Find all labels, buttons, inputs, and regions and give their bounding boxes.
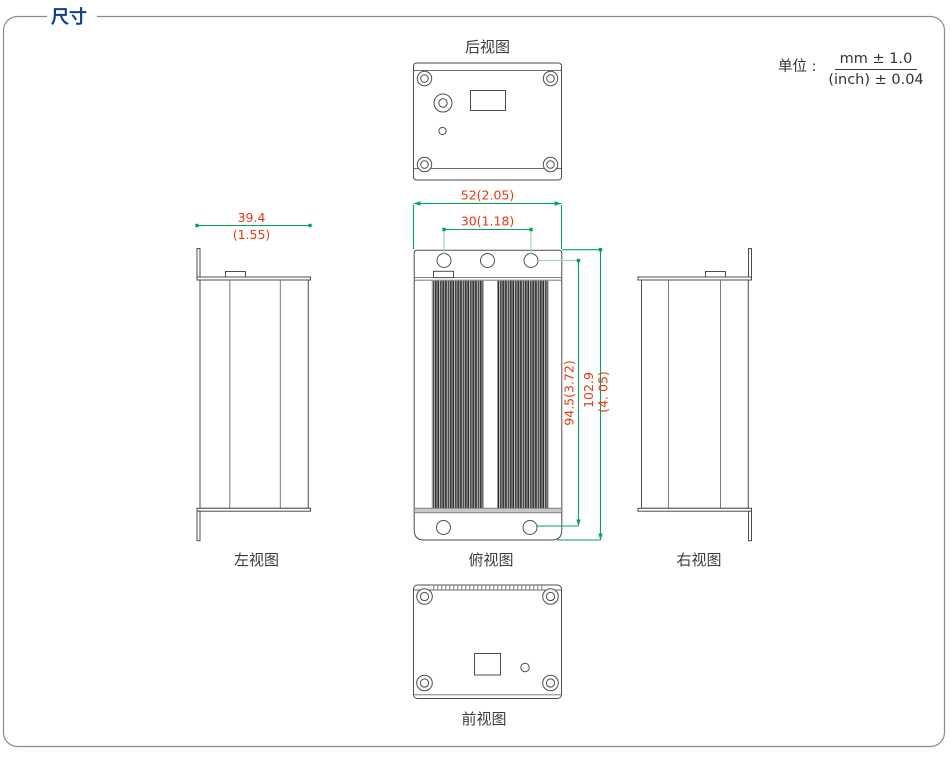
left-view-label: 左视图 [234, 551, 279, 569]
mounting-hole [437, 254, 451, 268]
terminal-cutout [471, 91, 506, 111]
top-view: 俯视图 [414, 250, 562, 569]
corner-screw [417, 675, 433, 691]
flange-plate [197, 508, 311, 511]
rear-view: 后视图 [414, 38, 562, 180]
mounting-hole [481, 254, 495, 268]
dim-width-inner: 30(1.18) [461, 214, 515, 229]
left-view-body [200, 280, 308, 508]
corner-screw [543, 71, 557, 85]
front-view-body [414, 585, 562, 699]
rear-view-body [414, 63, 562, 180]
flange-lip [197, 511, 200, 541]
mounting-hole [523, 521, 537, 535]
right-view-label: 右视图 [676, 551, 721, 569]
connector-port [434, 94, 452, 112]
flange-lip [749, 511, 752, 541]
unit-label: 单位 : [778, 58, 817, 75]
heatsink-fins [432, 281, 484, 508]
fin-edge-hatch [432, 586, 545, 590]
front-view-label: 前视图 [461, 710, 506, 728]
unit-numerator: mm ± 1.0 [840, 51, 913, 67]
corner-screw [417, 157, 431, 171]
mounting-hole [437, 521, 451, 535]
base-plate-edge [414, 508, 562, 513]
corner-screw [417, 71, 431, 85]
terminal-cutout [475, 654, 501, 676]
left-view: 39.4 (1.55) 左视图 [195, 210, 311, 569]
dim-height-total-mm: 102.9 [581, 372, 596, 408]
corner-screw [543, 157, 557, 171]
top-view-label: 俯视图 [468, 551, 513, 569]
page-title: 尺寸 [51, 6, 87, 28]
dim-depth-inch: (1.55) [233, 227, 271, 242]
dim-height-holes: 94.5(3.72) [562, 360, 577, 425]
unit-denominator: (inch) ± 0.04 [828, 72, 923, 88]
dim-height-total-inch: (4. 05) [596, 371, 611, 413]
heatsink-fins [497, 281, 548, 508]
corner-screw [543, 589, 559, 605]
flange-plate [638, 508, 752, 511]
mounting-tab [434, 271, 454, 277]
dimension-drawing-canvas: 尺寸 单位 : mm ± 1.0 (inch) ± 0.04 后视图 [0, 0, 950, 760]
dim-width-outer: 52(2.05) [461, 188, 515, 203]
right-view-body [642, 280, 749, 508]
corner-screw [543, 675, 559, 691]
mounting-tab [226, 272, 246, 278]
corner-screw [417, 589, 433, 605]
flange-lip [749, 249, 752, 278]
flange-lip [197, 249, 200, 278]
mounting-hole [524, 254, 538, 268]
right-view: 右视图 [638, 249, 752, 570]
dim-depth-mm: 39.4 [238, 210, 266, 225]
width-dimensions: 52(2.05) 30(1.18) [414, 188, 562, 255]
mounting-tab [706, 272, 726, 278]
rear-view-label: 后视图 [465, 38, 510, 56]
unit-note: 单位 : mm ± 1.0 (inch) ± 0.04 [778, 51, 924, 88]
dimension-drawing-page: 尺寸 单位 : mm ± 1.0 (inch) ± 0.04 后视图 [0, 0, 950, 760]
front-view: 前视图 [414, 585, 562, 728]
